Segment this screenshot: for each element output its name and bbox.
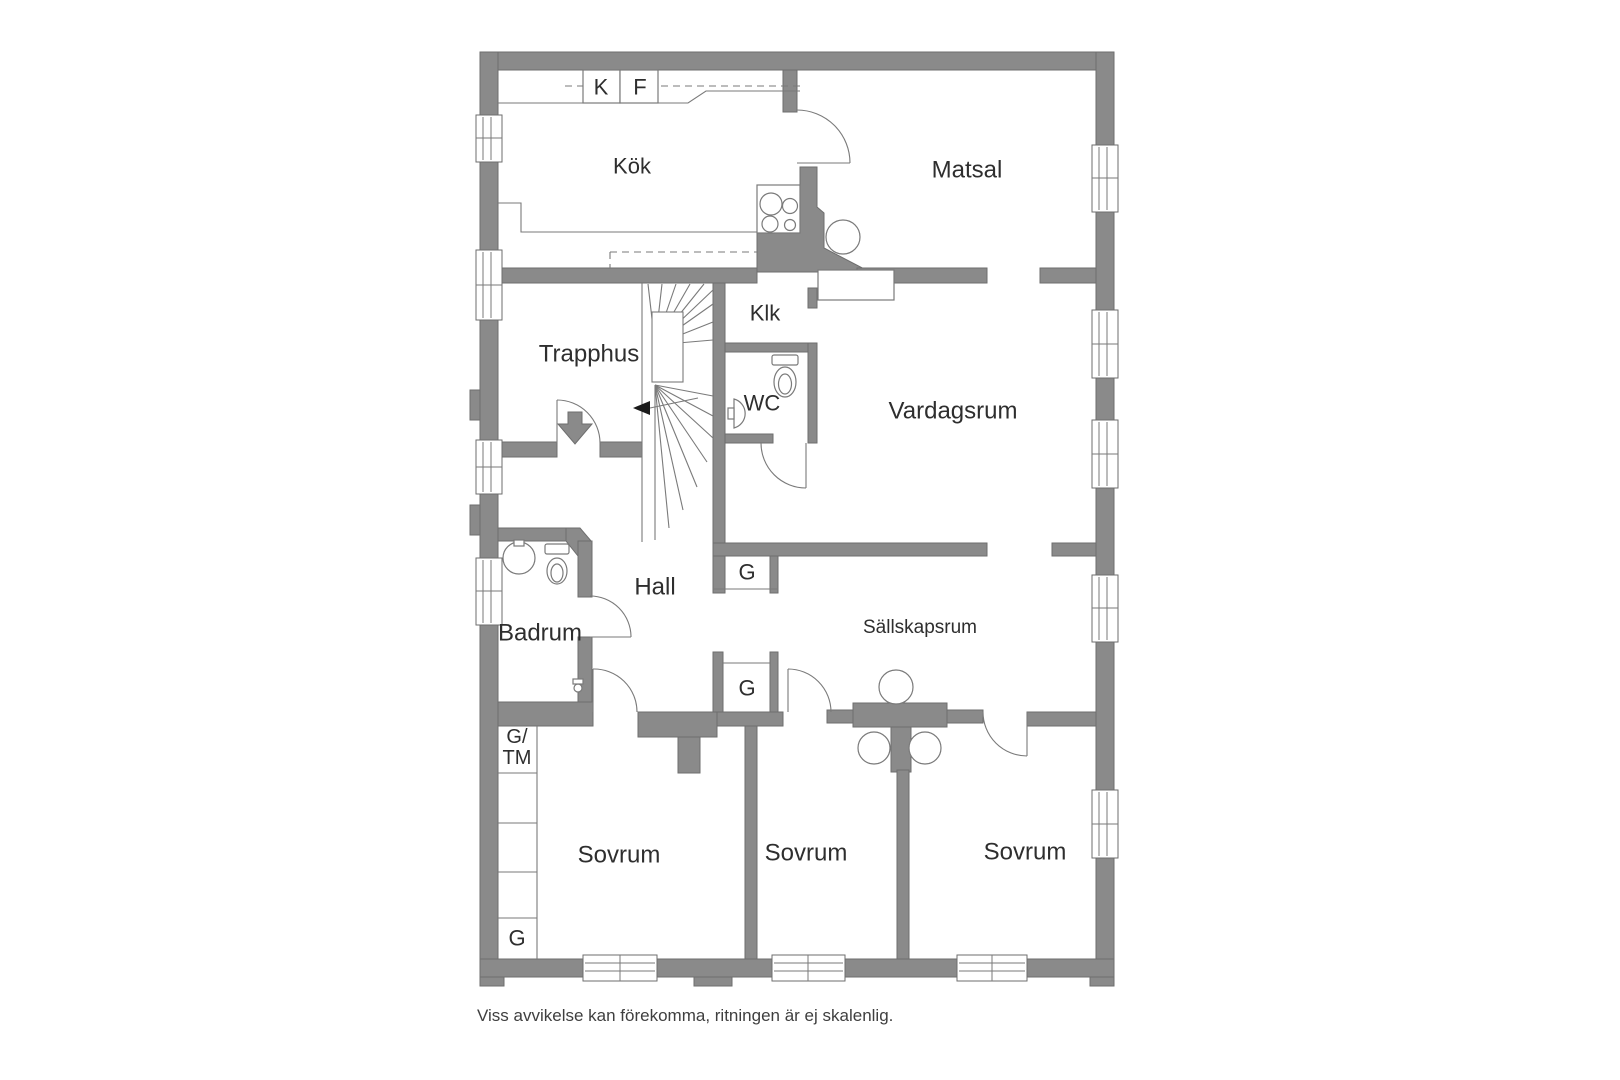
wall-trapphus-bottom-left — [498, 442, 557, 457]
counter-edge-bottom — [498, 203, 757, 232]
room-label-sallskapsrum: Sällskapsrum — [863, 618, 977, 638]
wall-klk-stub — [808, 288, 817, 308]
closet-label-g-sovrum: G — [508, 926, 525, 949]
room-label-vardagsrum: Vardagsrum — [889, 398, 1018, 423]
wall-sovrum3-top — [1027, 712, 1096, 726]
wc-sink-icon — [728, 399, 745, 428]
fireplace-wing-right — [947, 710, 983, 723]
room-label-hall: Hall — [634, 574, 675, 599]
window — [583, 955, 657, 981]
door-kok-matsal — [797, 110, 850, 163]
room-label-matsal: Matsal — [932, 157, 1003, 182]
wall-trapphus-bottom-right — [600, 442, 642, 457]
disclaimer-text: Viss avvikelse kan förekomma, ritningen … — [477, 1006, 893, 1026]
wall-kok-bottom — [498, 268, 757, 283]
window — [772, 955, 845, 981]
pilaster — [694, 977, 732, 986]
wall-sovrum1-sovrum2 — [745, 726, 757, 959]
closet-label-g-lower: G — [738, 676, 755, 699]
wall-hall-sovrum-column — [678, 737, 700, 773]
door-sovrum3 — [983, 712, 1027, 756]
window — [476, 115, 502, 162]
closet-label-g-tm-line2: TM — [503, 748, 532, 769]
wall-badrum-top — [498, 528, 566, 541]
wall-hall-sovrum-t — [638, 712, 717, 737]
door-wc — [761, 443, 806, 488]
wall-badrum-bottom — [498, 702, 593, 726]
pilaster — [470, 505, 480, 535]
room-label-trapphus: Trapphus — [539, 341, 640, 366]
wall-left — [480, 52, 498, 977]
room-label-wc: WC — [744, 391, 781, 414]
room-label-kok: Kök — [613, 154, 651, 177]
pilaster — [480, 977, 504, 986]
room-label-sovrum-1: Sovrum — [578, 842, 661, 867]
window — [957, 955, 1027, 981]
window — [1092, 310, 1118, 378]
wall-badrum-right-lower — [578, 637, 592, 703]
window — [476, 440, 502, 494]
closet-label-g-upper: G — [738, 560, 755, 583]
fireplace-column — [891, 727, 911, 772]
fireplace-body — [853, 703, 947, 727]
wall-matsal-bottom-right — [1040, 268, 1096, 283]
closet-label-g-tm: G/ TM — [503, 727, 532, 769]
stair-landing — [652, 312, 683, 382]
opening-matsal-vardagsrum — [818, 270, 894, 300]
window — [1092, 420, 1118, 488]
window — [1092, 790, 1118, 858]
door-sovrum1 — [593, 669, 637, 712]
flue-circle — [879, 670, 913, 704]
water-heater-icon — [826, 220, 860, 254]
staircase — [558, 283, 713, 542]
floor-plan: Kök Matsal Trapphus Klk WC Vardagsrum Ha… — [0, 0, 1620, 1080]
cabinet-label-fridge: K — [594, 75, 609, 98]
faucet-icon — [573, 679, 583, 692]
door-sovrum2 — [788, 669, 831, 712]
wall-sovrum2-sovrum3 — [897, 770, 909, 959]
wall-top — [480, 52, 1114, 70]
window — [476, 250, 502, 320]
door-badrum — [590, 596, 631, 637]
floor-plan-drawing — [0, 0, 1620, 1080]
flue-circle — [909, 732, 941, 764]
stair-treads-lower — [655, 385, 713, 540]
flue-circle — [858, 732, 890, 764]
pilaster — [470, 390, 480, 420]
closet-stub — [770, 652, 778, 712]
wall-wc-bottom — [725, 434, 773, 443]
badrum-toilet-icon — [545, 544, 569, 584]
room-label-badrum: Badrum — [498, 620, 582, 645]
closet-stub — [770, 556, 778, 593]
closet-label-g-tm-line1: G/ — [503, 727, 532, 748]
window — [1092, 145, 1118, 212]
wall-badrum-right-upper — [578, 541, 592, 597]
room-label-klk: Klk — [750, 301, 781, 324]
stove-icon — [757, 185, 800, 233]
wall-vardagsrum-bottom-right — [1052, 543, 1096, 556]
window — [1092, 575, 1118, 642]
cabinet-label-freezer: F — [633, 75, 646, 98]
closet-stub — [713, 652, 723, 712]
pilaster — [1090, 977, 1114, 986]
room-label-sovrum-2: Sovrum — [765, 840, 848, 865]
badrum-sink-icon — [503, 540, 535, 574]
wall-wc-right — [808, 343, 817, 443]
entry-arrow-icon — [558, 412, 592, 444]
window — [476, 558, 502, 625]
wall-vardagsrum-bottom — [713, 543, 987, 556]
wall-klk-wc — [725, 343, 808, 352]
room-label-sovrum-3: Sovrum — [984, 839, 1067, 864]
wall-hall-sovrum — [717, 712, 783, 726]
